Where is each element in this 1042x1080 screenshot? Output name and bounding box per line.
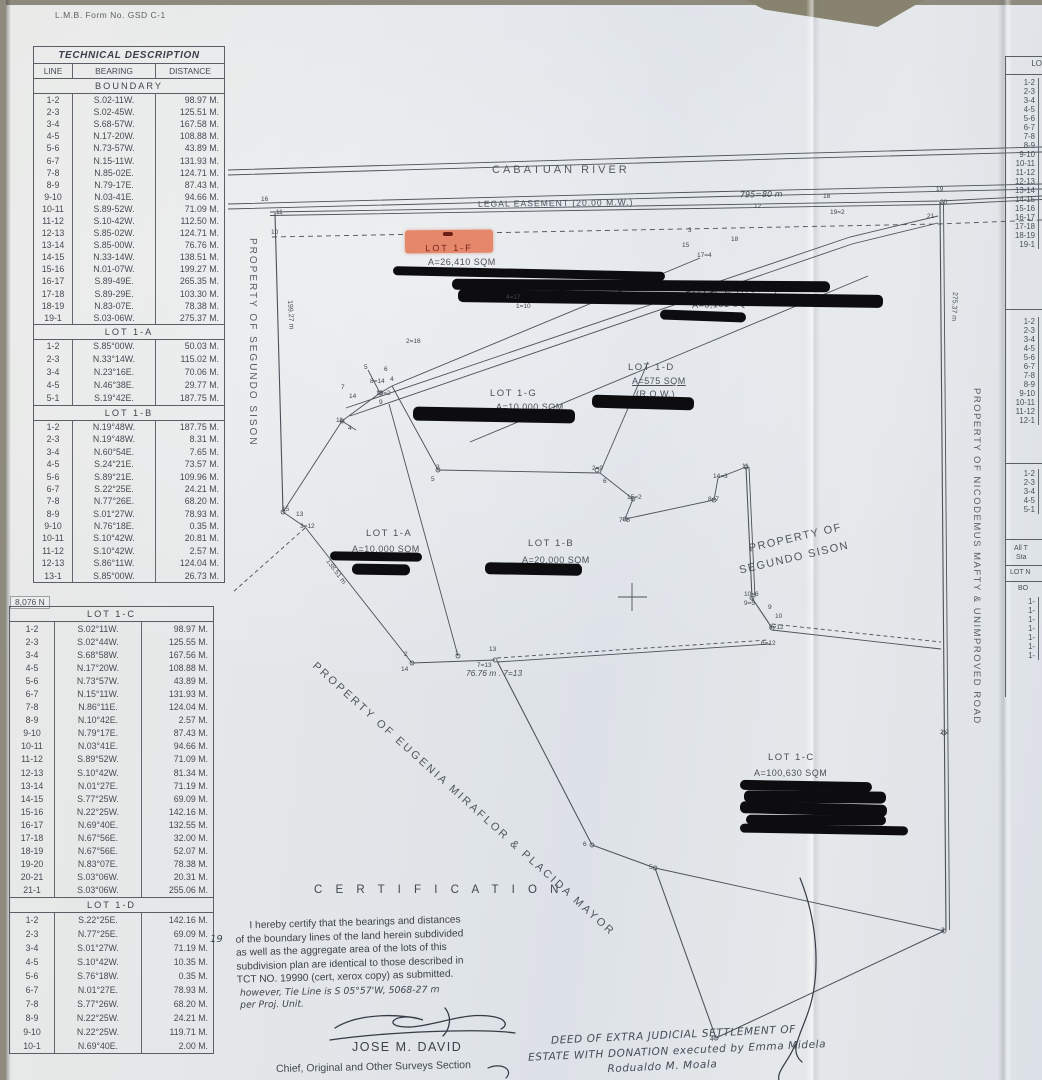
rt-row: 1-2 — [1006, 78, 1039, 87]
lot-1b-south-line — [497, 644, 770, 662]
rt-row: 1- — [1006, 651, 1039, 660]
vertex-number: 18 — [823, 193, 830, 200]
certification-title: C E R T I F I C A T I O N — [314, 884, 563, 896]
rt-row: 8-9 — [1006, 141, 1039, 150]
signature-jose-david — [330, 1008, 515, 1040]
vertex-number: 2=9 — [592, 465, 603, 472]
vertex-number: 11 — [742, 463, 749, 470]
rt-row: 12-13 — [1006, 177, 1039, 186]
vertex-number: 6 — [384, 366, 388, 373]
rt-row: 14-15 — [1006, 195, 1039, 204]
vertex-number: 18 — [731, 236, 738, 243]
rt-row: 11-12 — [1006, 407, 1039, 416]
east-boundary-line — [940, 202, 946, 930]
vertex-number: 2|2 — [940, 729, 949, 736]
vertex-number: 7=8 — [619, 517, 630, 524]
rt-row: 1- — [1006, 624, 1039, 633]
vertex-number: 6 — [583, 841, 587, 848]
vertex-number: 16 — [261, 196, 268, 203]
vertex-number: 8=12 — [769, 624, 784, 631]
vertex-number: 5 — [431, 476, 435, 483]
vertex-number: 4 — [348, 425, 352, 432]
vertex-number: 13 — [296, 511, 303, 518]
rt-row: 5-1 — [1006, 505, 1039, 514]
rt-row: 1- — [1006, 606, 1039, 615]
east-boundary-line — [944, 202, 950, 930]
rt-row: 19-1 — [1006, 240, 1039, 249]
property-east-label: PROPERTY OF NICODEMUS MAFTY & UNIMPROVED… — [971, 388, 982, 725]
rt-row: 9-10 — [1006, 389, 1039, 398]
lot-1f-area: A=26,410 SQM — [428, 257, 496, 267]
rt-row: 7-8 — [1006, 371, 1039, 380]
lot-1g-boundary — [392, 386, 600, 473]
vertex-number: 17=4 — [697, 252, 712, 259]
rt-row: 17-18 — [1006, 222, 1039, 231]
vertex-number: 20 — [940, 199, 947, 206]
vertex-number: 9 — [768, 604, 772, 611]
measurement-west-upper: 199.27 m — [286, 300, 295, 330]
redacted-text — [413, 407, 575, 424]
vertex-number: 5 — [649, 864, 653, 871]
lot-1c-name: LOT 1-C — [768, 752, 815, 763]
rt-row: 2-3 — [1006, 326, 1039, 335]
vertex-number: 15=2 — [627, 494, 642, 501]
rt-row: 4-5 — [1006, 344, 1039, 353]
property-dashed-line — [232, 528, 305, 593]
vertex-number: 4 — [390, 376, 394, 383]
rt-row: 12-1 — [1006, 416, 1039, 425]
redacted-text — [592, 395, 694, 411]
vertex-number: 19=2 — [830, 209, 845, 216]
handwritten-mark: 19 — [210, 934, 223, 945]
vertex-number: 19 — [936, 186, 943, 193]
river-bank-line — [228, 152, 1042, 175]
clipped-table-section1: 1-22-33-44-55-66-77-88-99-1010-1111-1212… — [1006, 78, 1039, 249]
rt-row: 5-6 — [1006, 114, 1039, 123]
clipped-table-footer-label: BO — [1018, 585, 1028, 592]
lot-1a-name: LOT 1-A — [366, 528, 412, 539]
clipped-table-footer-rows: 1-1-1-1-1-1-1- — [1006, 597, 1039, 660]
rt-row: 1- — [1006, 615, 1039, 624]
lot-1b-south-line — [497, 640, 768, 658]
rt-row: 8-9 — [1006, 380, 1039, 389]
vertex-number: 8=7 — [708, 496, 719, 503]
vertex-number: 9 — [379, 399, 383, 406]
vertex-number: 7 — [341, 384, 345, 391]
vertex-number: 14=3 — [713, 473, 728, 480]
river-bank-line — [228, 147, 1042, 170]
vertex-number: 14 — [349, 393, 356, 400]
lot-1c-boundary — [497, 661, 944, 1038]
vertex-number: 5 — [364, 364, 368, 371]
measurement-bottom: 76.76 m . 7=13 — [466, 668, 522, 678]
rt-row: 6-7 — [1006, 123, 1039, 132]
vertex-number: 6=12 — [761, 640, 776, 647]
easement-label: LEGAL EASEMENT (20.00 M.W.) — [478, 197, 634, 209]
rt-row: 1-2 — [1006, 469, 1039, 478]
vertex-number: 11 — [276, 209, 283, 216]
rt-row: 3-4 — [1006, 96, 1039, 105]
vertex-number: 8=14 — [370, 378, 385, 385]
handwritten-measurement: 795=80 m — [740, 190, 783, 200]
vertex-number: 3 — [436, 464, 440, 471]
lot-1d-area: A=575 SQM — [632, 376, 686, 386]
vertex-number: 10 — [775, 613, 782, 620]
certification-body: I hereby certify that the bearings and d… — [235, 910, 573, 987]
vertex-number: 14 — [401, 666, 408, 673]
vertex-number: 11 — [336, 417, 343, 424]
lot-1g-name: LOT 1-G — [490, 388, 537, 399]
lot-1c-boundary — [655, 868, 944, 931]
vertex-number: 4 — [710, 1036, 714, 1043]
rt-row: 7-8 — [1006, 132, 1039, 141]
clipped-table-footer-label: LOT N — [1010, 569, 1031, 576]
measurement-east: 275.37 m — [950, 292, 958, 321]
rt-row: 16-17 — [1006, 213, 1039, 222]
rt-row: 3-4 — [1006, 335, 1039, 344]
redacted-text — [485, 562, 582, 576]
property-west-label: PROPERTY OF SEGUNDO SISON — [247, 238, 258, 447]
rt-row: 18-19 — [1006, 231, 1039, 240]
vertex-number: 2 — [404, 651, 408, 658]
rt-row: 5-6 — [1006, 353, 1039, 362]
clipped-table-footer-label: Sta — [1016, 554, 1027, 561]
clipped-table-section2: 1-22-33-44-55-66-77-88-99-1010-1111-1212… — [1006, 317, 1039, 425]
rt-row: 1- — [1006, 633, 1039, 642]
vertex-number: 10=2 — [376, 390, 391, 397]
lot-1f-highlight: LOT 1-F — [405, 230, 493, 254]
easement-dashed-line — [272, 220, 1042, 237]
highlight-mark — [443, 232, 453, 236]
vertex-number: 15 — [282, 506, 289, 513]
rt-row: 1- — [1006, 642, 1039, 651]
rt-row: 2-3 — [1006, 87, 1039, 96]
rt-row: 11-12 — [1006, 168, 1039, 177]
lot-1c-area: A=100,630 SQM — [754, 768, 827, 778]
west-boundary-line — [275, 213, 283, 512]
rt-row: 4-5 — [1006, 496, 1039, 505]
vertex-number: 2=16 — [406, 338, 421, 345]
rt-row: 10-11 — [1006, 159, 1039, 168]
cross-mark — [618, 583, 647, 611]
rt-row: 9-10 — [1006, 150, 1039, 159]
redacted-text — [330, 551, 422, 561]
lot-1f-name: LOT 1-F — [405, 243, 493, 254]
vertex-number: 4=17 — [506, 294, 521, 301]
vertex-number: 21 — [927, 213, 934, 220]
rt-row: 10-11 — [1006, 398, 1039, 407]
rt-row: 2-3 — [1006, 478, 1039, 487]
rt-row: 1-2 — [1006, 317, 1039, 326]
vertex-number: 3=12 — [300, 523, 315, 530]
rt-row: 13-14 — [1006, 186, 1039, 195]
vertex-number: 7=13 — [477, 662, 492, 669]
clipped-table-section3: 1-22-33-44-55-1 — [1006, 469, 1039, 514]
rt-row: 15-16 — [1006, 204, 1039, 213]
rt-row: 4-5 — [1006, 105, 1039, 114]
rt-row: 3-4 — [1006, 487, 1039, 496]
vertex-number: 9=5 — [744, 600, 755, 607]
signatory-name: JOSE M. DAVID — [352, 1040, 462, 1054]
redacted-text — [352, 563, 410, 575]
vertex-number: 13 — [489, 646, 496, 653]
clipped-table-header: LO — [1031, 59, 1042, 68]
vertex-number: 6 — [603, 478, 607, 485]
vertex-number: 15 — [682, 242, 689, 249]
vertex-number: 12 — [754, 203, 761, 210]
vertex-number: 1=10 — [516, 303, 531, 310]
scanned-subdivision-plan: L.M.B. Form No. GSD C-1 TECHNICAL DESCRI… — [0, 0, 1042, 1080]
vertex-number: 3 — [688, 227, 692, 234]
certification-handwritten-note: however, Tie Line is S 05°57'W, 5068-27 … — [240, 984, 440, 1010]
vertex-number: 10 — [271, 229, 278, 236]
river-label: CABATUAN RIVER — [492, 164, 630, 176]
vertex-number: 10=6 — [744, 591, 759, 598]
clipped-right-table: LO 1-22-33-44-55-66-77-88-99-1010-1111-1… — [1005, 56, 1042, 697]
rt-row: 1- — [1006, 597, 1039, 606]
rt-row: 6-7 — [1006, 362, 1039, 371]
vertex-number: 1 — [455, 650, 459, 657]
clipped-table-footer-label: All T — [1014, 545, 1028, 552]
vertex-number: 3 — [941, 927, 945, 934]
lot-1d-name: LOT 1-D — [628, 362, 675, 373]
lot-1b-boundary — [749, 467, 755, 597]
lot-1b-name: LOT 1-B — [528, 538, 574, 549]
